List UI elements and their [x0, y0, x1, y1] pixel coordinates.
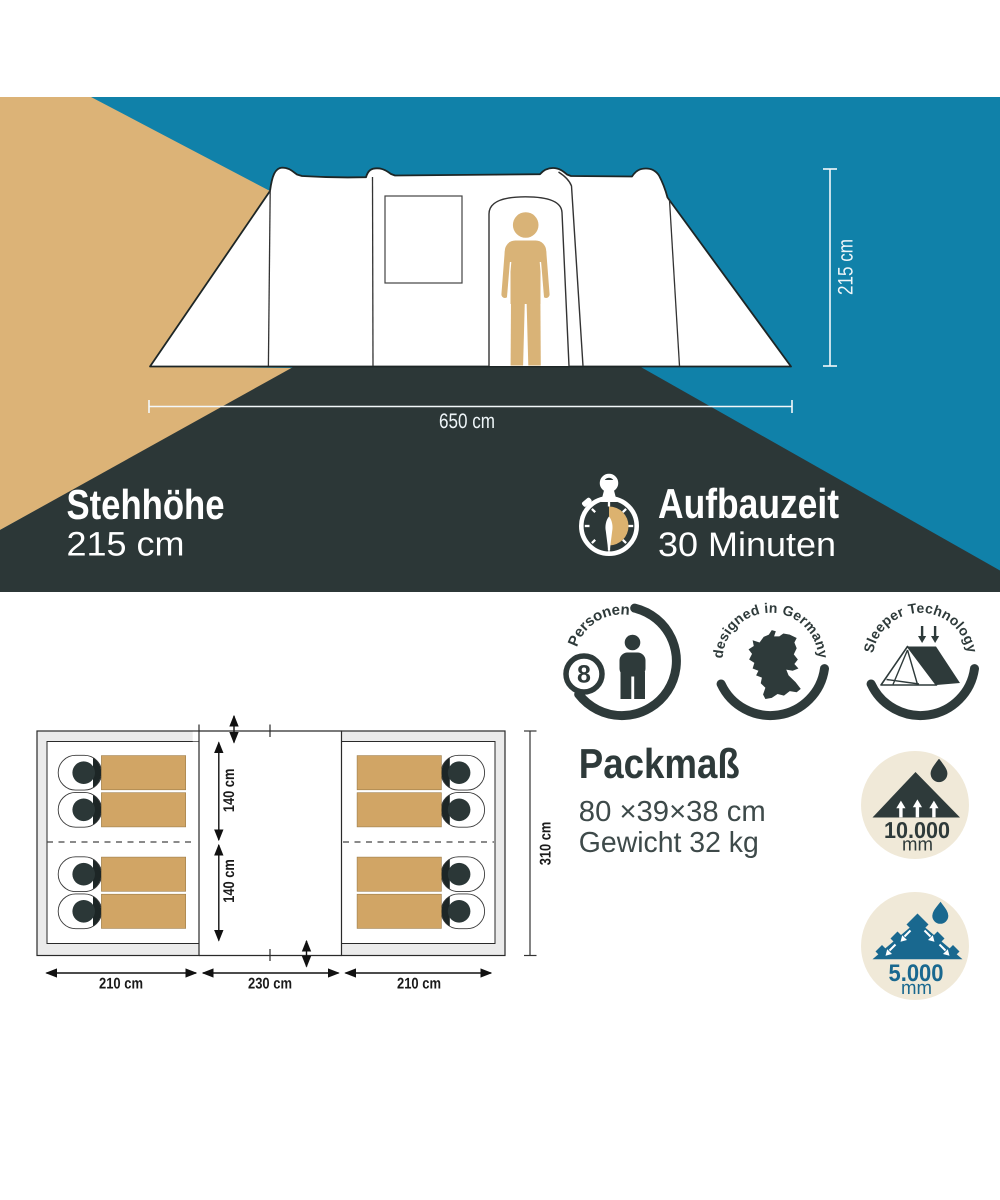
svg-text:Packmaß: Packmaß: [579, 740, 740, 787]
svg-text:650 cm: 650 cm: [439, 410, 495, 433]
svg-text:mm: mm: [901, 978, 932, 999]
svg-text:210 cm: 210 cm: [397, 976, 441, 993]
svg-text:Stehhöhe: Stehhöhe: [67, 481, 225, 528]
svg-text:8: 8: [577, 661, 591, 689]
svg-text:Gewicht 32 kg: Gewicht 32 kg: [579, 827, 759, 859]
svg-text:30 Minuten: 30 Minuten: [658, 526, 836, 564]
svg-text:80 ×39×38 cm: 80 ×39×38 cm: [579, 796, 766, 828]
svg-text:140 cm: 140 cm: [221, 859, 238, 903]
svg-text:Aufbauzeit: Aufbauzeit: [658, 480, 839, 527]
svg-text:mm: mm: [902, 835, 933, 856]
svg-text:210 cm: 210 cm: [99, 976, 143, 993]
svg-text:215 cm: 215 cm: [67, 526, 185, 564]
svg-text:215 cm: 215 cm: [835, 239, 858, 295]
svg-text:310 cm: 310 cm: [538, 822, 555, 866]
svg-text:140 cm: 140 cm: [221, 769, 238, 813]
svg-text:230 cm: 230 cm: [248, 976, 292, 993]
